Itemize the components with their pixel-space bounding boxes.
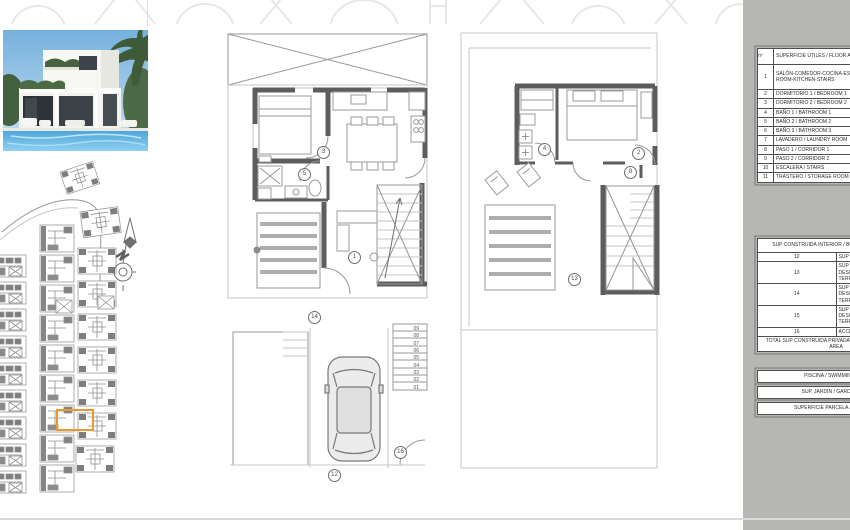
- row-label: SUP CONSTRUIDA TERRAZA DESCUBIERTA 1 / B…: [836, 262, 850, 284]
- row-num: 8: [758, 145, 774, 154]
- row-label: LAVADERO / LAUNDRY ROOM: [774, 136, 850, 145]
- bathroom: [258, 166, 321, 199]
- row-label: BAÑO 3 / BATHROOM 3: [774, 127, 850, 136]
- row-num: 13: [758, 262, 837, 284]
- step-number: 08: [396, 333, 419, 340]
- row-num: 2: [758, 90, 774, 99]
- void-crossed-box: [228, 34, 427, 85]
- room-marker: 5: [298, 168, 311, 181]
- room-marker: 3: [317, 146, 330, 159]
- step-number: 06: [396, 348, 419, 355]
- site-xbox: [98, 296, 114, 309]
- pool-area-bar: PISCINA / SWIMMING POOL: [757, 370, 850, 383]
- row-label: SALÓN-COMEDOR-COCINA-ESCALERA / LIVING-D…: [774, 65, 850, 90]
- row-label: ACCESO / ACCESS: [836, 327, 850, 336]
- step-number: 03: [396, 370, 419, 377]
- garden-area-bar: SUP. JARDÍN / GARDEN AREA: [757, 386, 850, 399]
- villa-render-photo: [3, 30, 148, 151]
- lower-roof-outline: [461, 330, 657, 468]
- photo-pool: [3, 128, 148, 151]
- row-num: 4: [758, 108, 774, 117]
- row-num: 15: [758, 305, 837, 327]
- floor-areas-table: nº SUPERFICIE ÚTILES / FLOOR AREAS 1SALÓ…: [757, 48, 850, 183]
- lounge-chairs: [485, 163, 541, 195]
- storage-slats: [254, 213, 321, 288]
- room-marker: 12: [328, 469, 341, 482]
- row-num: 5: [758, 117, 774, 126]
- kitchen-dining: [333, 92, 425, 170]
- sheet-border-line: [0, 518, 850, 520]
- built-areas-table: SUP CONSTRUIDA INTERIOR / BUILT INTERIOR…: [757, 238, 850, 352]
- site-units-middle: [40, 225, 74, 492]
- car: [325, 357, 383, 461]
- row-num: 16: [758, 327, 837, 336]
- table-header-num: nº: [758, 49, 774, 65]
- sheet-grid-line: [147, 0, 148, 26]
- first-floor-plan: [455, 28, 665, 476]
- row-label: SUP CONSTRUIDA TERRAZA DESCUBIERTA 2 / B…: [836, 284, 850, 306]
- staircase: [603, 185, 657, 295]
- ground-floor-plan: [225, 28, 430, 476]
- row-num: 1: [758, 65, 774, 90]
- row-label: BAÑO 2 / BATHROOM 2: [774, 117, 850, 126]
- step-number: 07: [396, 341, 419, 348]
- room-marker: 16: [394, 446, 407, 459]
- row-label: TRASTERO / STORAGE ROOM: [774, 173, 850, 182]
- watermark: [0, 0, 850, 24]
- drawing-sheet: 3 5 1 14 12 16 4 2 8 13 09 08 07 06 05 0…: [0, 0, 850, 530]
- row-num: 3: [758, 99, 774, 108]
- row-num: 6: [758, 127, 774, 136]
- step-number: 05: [396, 355, 419, 362]
- row-label: SUP CONSTRUIDA TERRAZA DESCUBIERTA 3 / B…: [836, 305, 850, 327]
- site-xbox: [56, 300, 72, 313]
- row-label: PASO 1 / CORRIDOR 1: [774, 145, 850, 154]
- site-plan: [0, 160, 152, 520]
- site-units-right: [76, 207, 121, 472]
- room-marker: 2: [632, 147, 645, 160]
- row-num: 14: [758, 284, 837, 306]
- total-row: TOTAL SUP CONSTRUIDA PRIVADA / TOTAL BUI…: [758, 336, 850, 352]
- row-num: 10: [758, 164, 774, 173]
- row-label: BAÑO 1 / BATHROOM 1: [774, 108, 850, 117]
- row-label: DORMITORIO 1 / BEDROOM 1: [774, 90, 850, 99]
- site-unit: [60, 161, 100, 194]
- bed: [259, 96, 311, 162]
- room-marker: 4: [538, 143, 551, 156]
- row-num: 9: [758, 154, 774, 163]
- row-num: 7: [758, 136, 774, 145]
- staircase: [377, 185, 422, 284]
- row-label: ESCALERA / STAIRS: [774, 164, 850, 173]
- row-label: DORMITORIO 2 / BEDROOM 2: [774, 99, 850, 108]
- row-label: SUP GARAJE / GARAGE AREA: [836, 253, 850, 262]
- room-marker: 13: [568, 273, 581, 286]
- column: [254, 247, 261, 254]
- row-num: 11: [758, 173, 774, 182]
- step-number: 02: [396, 377, 419, 384]
- site-units-left: [0, 255, 26, 493]
- row-num: 12: [758, 253, 837, 262]
- plot-area-bar: SUPERFICIE PARCELA / PLOT AREA: [757, 402, 850, 415]
- pergola-slats: [485, 205, 555, 290]
- room-marker: 1: [348, 251, 361, 264]
- table-header-label: SUPERFICIE ÚTILES / FLOOR AREAS: [774, 49, 850, 65]
- row-label: PASO 2 / CORRIDOR 2: [774, 154, 850, 163]
- room-marker: 8: [624, 166, 637, 179]
- room-marker: 14: [308, 311, 321, 324]
- step-number: 04: [396, 363, 419, 370]
- section-header: SUP CONSTRUIDA INTERIOR / BUILT INTERIOR…: [758, 239, 850, 253]
- step-number: 01: [396, 385, 419, 392]
- step-number: 09: [396, 326, 419, 333]
